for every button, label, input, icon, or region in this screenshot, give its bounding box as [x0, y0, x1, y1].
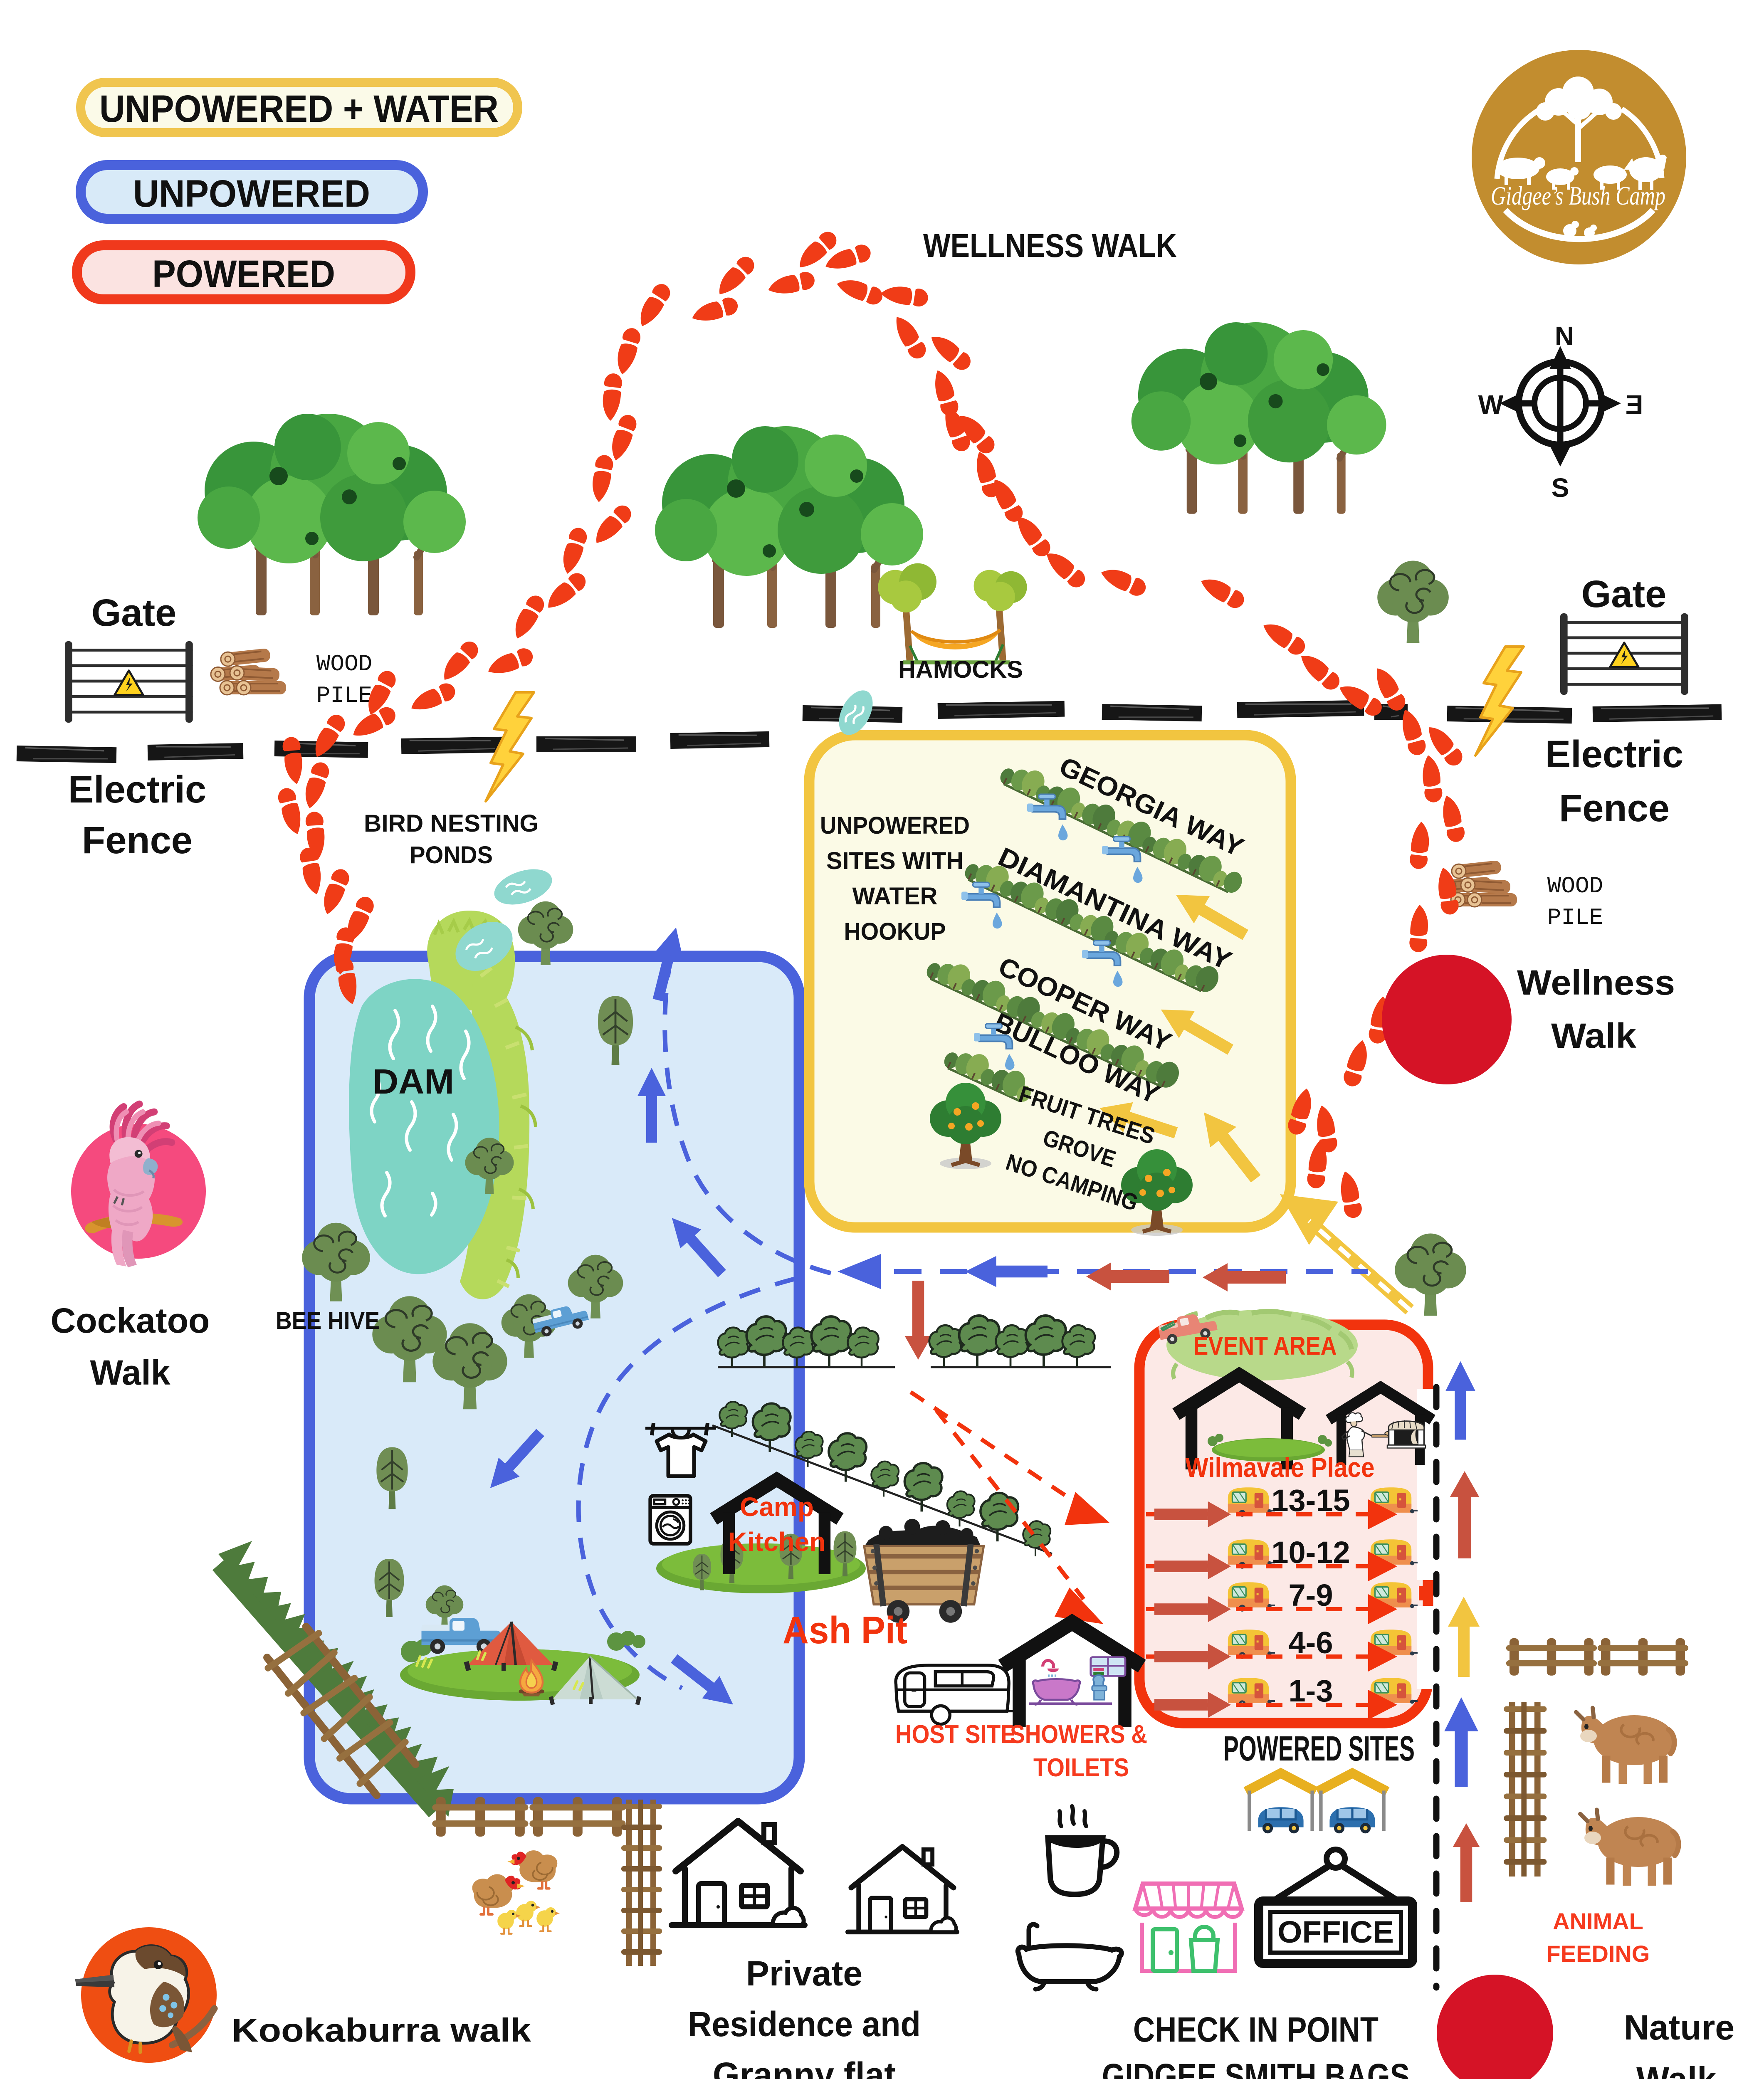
- svg-text:SHOWERS &: SHOWERS &: [1010, 1720, 1147, 1749]
- svg-text:WATER: WATER: [852, 883, 938, 910]
- svg-text:CHECK IN POINT: CHECK IN POINT: [1133, 2010, 1379, 2049]
- svg-text:GIDGEE SMITH BAGS: GIDGEE SMITH BAGS: [1102, 2057, 1410, 2079]
- svg-text:UNPOWERED: UNPOWERED: [820, 812, 970, 839]
- svg-text:Residence and: Residence and: [688, 2005, 921, 2044]
- svg-text:HOOKUP: HOOKUP: [844, 918, 946, 945]
- svg-text:Gate: Gate: [91, 592, 177, 634]
- svg-text:UNPOWERED: UNPOWERED: [133, 173, 370, 215]
- svg-text:Fence: Fence: [1559, 787, 1670, 830]
- svg-text:Electric: Electric: [1545, 733, 1683, 775]
- svg-text:Gate: Gate: [1581, 573, 1667, 615]
- svg-text:SITES WITH: SITES WITH: [826, 847, 964, 874]
- svg-text:Walk: Walk: [1551, 1016, 1636, 1055]
- svg-text:WOOD: WOOD: [316, 651, 372, 677]
- svg-text:HOST SITE: HOST SITE: [895, 1720, 1016, 1749]
- svg-text:EVENT AREA: EVENT AREA: [1193, 1332, 1337, 1360]
- svg-text:Gidgee’s Bush Camp: Gidgee’s Bush Camp: [1491, 181, 1665, 210]
- svg-text:Wilmavale Place: Wilmavale Place: [1186, 1452, 1375, 1483]
- svg-text:BEE HIVE: BEE HIVE: [276, 1307, 380, 1334]
- svg-text:W: W: [1478, 390, 1504, 420]
- svg-text:ANIMAL: ANIMAL: [1553, 1908, 1643, 1934]
- svg-text:POWERED: POWERED: [152, 253, 335, 295]
- svg-text:Kookaburra walk: Kookaburra walk: [232, 2012, 531, 2049]
- svg-text:Camp: Camp: [740, 1492, 814, 1522]
- svg-text:HAMOCKS: HAMOCKS: [898, 656, 1023, 683]
- svg-text:Ash Pit: Ash Pit: [783, 1609, 907, 1652]
- svg-text:N: N: [1555, 321, 1574, 351]
- svg-text:TOILETS: TOILETS: [1033, 1753, 1129, 1782]
- svg-text:BIRD NESTING: BIRD NESTING: [364, 810, 539, 837]
- svg-text:Nature: Nature: [1624, 2008, 1734, 2047]
- svg-text:PONDS: PONDS: [410, 842, 493, 869]
- svg-text:POWERED SITES: POWERED SITES: [1223, 1729, 1415, 1768]
- svg-text:S: S: [1552, 473, 1569, 503]
- svg-text:Walk: Walk: [1636, 2060, 1717, 2079]
- svg-text:WOOD: WOOD: [1547, 873, 1603, 899]
- svg-text:Cockatoo: Cockatoo: [51, 1301, 210, 1340]
- svg-text:FEEDING: FEEDING: [1547, 1941, 1650, 1967]
- svg-text:Wellness: Wellness: [1517, 963, 1675, 1002]
- svg-text:WELLNESS WALK: WELLNESS WALK: [923, 227, 1177, 264]
- svg-text:PILE: PILE: [1547, 904, 1603, 931]
- svg-text:Walk: Walk: [90, 1353, 170, 1392]
- svg-text:DAM: DAM: [373, 1062, 454, 1101]
- svg-text:Private: Private: [746, 1954, 862, 1993]
- svg-text:Kitchen: Kitchen: [728, 1527, 826, 1557]
- svg-text:Granny flat: Granny flat: [713, 2055, 896, 2079]
- svg-text:Fence: Fence: [82, 819, 193, 862]
- svg-text:UNPOWERED + WATER: UNPOWERED + WATER: [99, 88, 499, 130]
- svg-text:PILE: PILE: [316, 682, 372, 709]
- svg-text:E: E: [1626, 390, 1643, 420]
- svg-text:Electric: Electric: [68, 768, 206, 811]
